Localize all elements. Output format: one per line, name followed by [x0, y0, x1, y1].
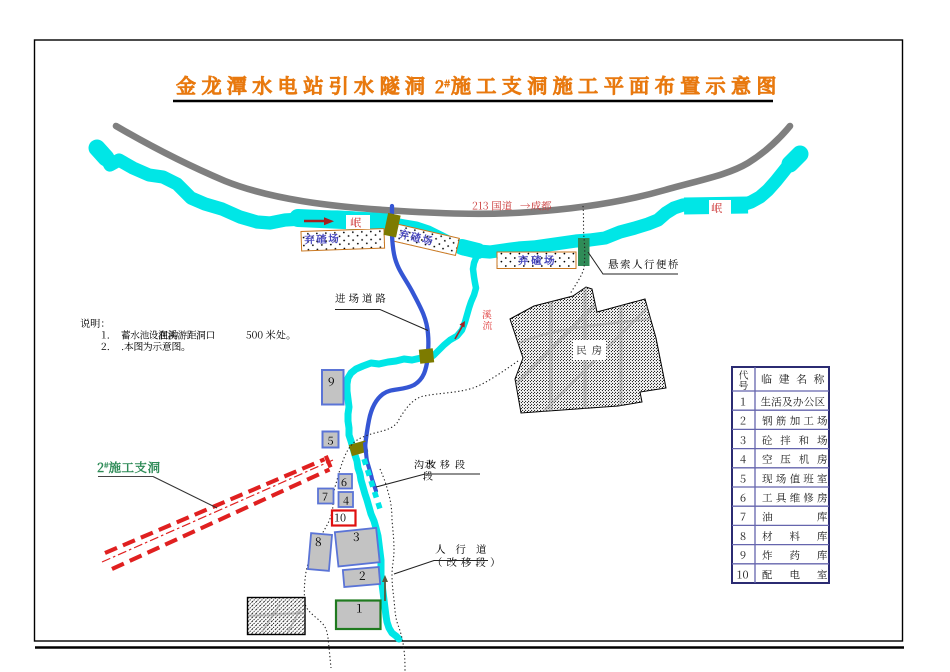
svg-text:段: 段 — [423, 468, 433, 483]
svg-text:工具维修房: 工具维修房 — [762, 491, 828, 506]
svg-text:岷: 岷 — [350, 215, 361, 231]
svg-text:7: 7 — [322, 489, 328, 505]
svg-text:3: 3 — [740, 432, 746, 448]
svg-text:进场道路: 进场道路 — [335, 291, 389, 306]
svg-text:弃碴场: 弃碴场 — [304, 231, 341, 247]
svg-text:2.: 2. — [101, 338, 110, 353]
svg-text:弃碴场: 弃碴场 — [518, 253, 557, 268]
svg-text:现场值班室: 现场值班室 — [762, 471, 828, 486]
svg-text:5: 5 — [740, 470, 746, 486]
svg-text:（改移段）: （改移段） — [432, 555, 505, 570]
svg-text:10: 10 — [334, 510, 346, 526]
svg-text:9: 9 — [740, 547, 746, 563]
svg-text:1: 1 — [356, 600, 363, 617]
svg-text:5: 5 — [328, 433, 334, 449]
svg-text:4: 4 — [740, 451, 746, 467]
svg-text:悬索人行便桥: 悬索人行便桥 — [608, 257, 680, 272]
svg-text:民房: 民房 — [576, 343, 607, 358]
svg-text:8: 8 — [315, 533, 322, 550]
svg-text:.本图为示意图。: .本图为示意图。 — [121, 339, 190, 353]
svg-text:10: 10 — [737, 566, 749, 582]
svg-text:移: 移 — [440, 456, 450, 471]
svg-text:6: 6 — [341, 474, 347, 490]
svg-text:材料库: 材料库 — [762, 529, 828, 544]
svg-text:2: 2 — [740, 413, 746, 429]
svg-text:号: 号 — [739, 377, 749, 392]
svg-text:流: 流 — [483, 318, 493, 332]
svg-text:3: 3 — [353, 528, 360, 545]
svg-text:→成都: →成都 — [520, 199, 552, 214]
svg-text:配电室: 配电室 — [762, 567, 828, 582]
svg-text:1: 1 — [740, 394, 746, 410]
svg-text:钢筋加工场: 钢筋加工场 — [762, 414, 828, 429]
svg-text:6: 6 — [740, 490, 746, 506]
svg-text:500 米处。: 500 米处。 — [246, 327, 296, 342]
svg-text:7: 7 — [740, 509, 746, 525]
svg-text:213 国道: 213 国道 — [472, 199, 513, 214]
svg-text:8: 8 — [740, 528, 746, 544]
svg-text:岷: 岷 — [711, 200, 722, 216]
svg-text:2: 2 — [359, 567, 366, 584]
svg-text:金龙潭水电站引水隧洞 2#施工支洞施工平面布置示意图: 金龙潭水电站引水隧洞 2#施工支洞施工平面布置示意图 — [176, 70, 782, 99]
svg-text:生活及办公区: 生活及办公区 — [761, 395, 826, 410]
svg-text:段: 段 — [455, 456, 465, 471]
svg-text:炸药库: 炸药库 — [762, 548, 828, 563]
svg-text:临建名称: 临建名称 — [761, 371, 831, 387]
svg-text:9: 9 — [328, 373, 335, 390]
svg-text:4: 4 — [343, 493, 349, 509]
